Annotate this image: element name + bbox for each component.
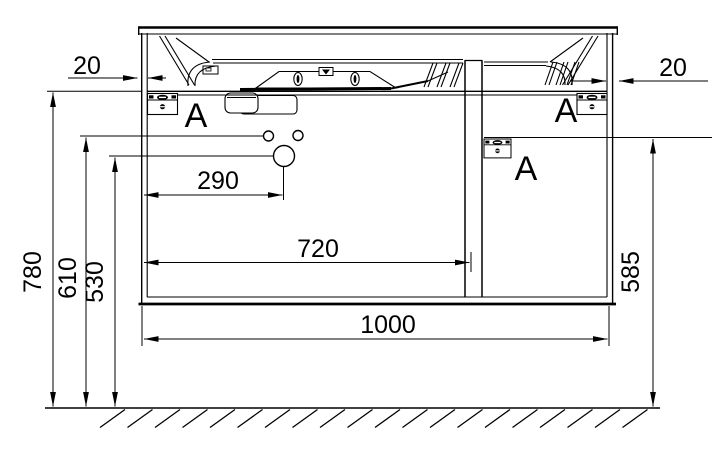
drawing-canvas: 20 20 290 720 1000 780 610 530 585 A A A xyxy=(0,0,720,457)
label-faucet-height: 530 xyxy=(81,261,109,303)
callout-hinge-center: A xyxy=(515,150,538,188)
fixing-hole-left xyxy=(264,131,274,141)
label-faucet-offset: 290 xyxy=(197,167,239,195)
label-holes-height: 610 xyxy=(54,257,82,299)
mounting-holes xyxy=(264,131,304,167)
callout-hinge-right: A xyxy=(555,92,578,130)
ground-hatching xyxy=(100,410,648,428)
label-left-overhang: 20 xyxy=(73,52,101,80)
faucet-hole xyxy=(274,146,295,167)
dimension-lines xyxy=(53,78,708,407)
ground xyxy=(45,408,660,428)
countertop xyxy=(138,27,618,36)
hinges xyxy=(148,94,608,158)
extension-lines xyxy=(47,91,609,346)
divider-panel xyxy=(465,61,483,298)
callout-hinge-left: A xyxy=(185,97,208,135)
label-right-overhang: 20 xyxy=(659,54,687,82)
fixing-hole-right xyxy=(293,131,303,141)
overflow-strips-left xyxy=(424,63,463,87)
label-inner-width: 720 xyxy=(297,235,339,263)
hinge-center xyxy=(484,139,511,158)
label-total-height: 780 xyxy=(19,251,47,293)
label-total-width: 1000 xyxy=(360,311,416,339)
washbasin-section xyxy=(160,36,599,114)
vanity-technical-drawing: 20 20 290 720 1000 780 610 530 585 A A A xyxy=(0,0,720,457)
label-right-panel-height: 585 xyxy=(617,251,645,293)
hinge-left xyxy=(148,94,178,115)
hinge-right xyxy=(577,94,607,115)
